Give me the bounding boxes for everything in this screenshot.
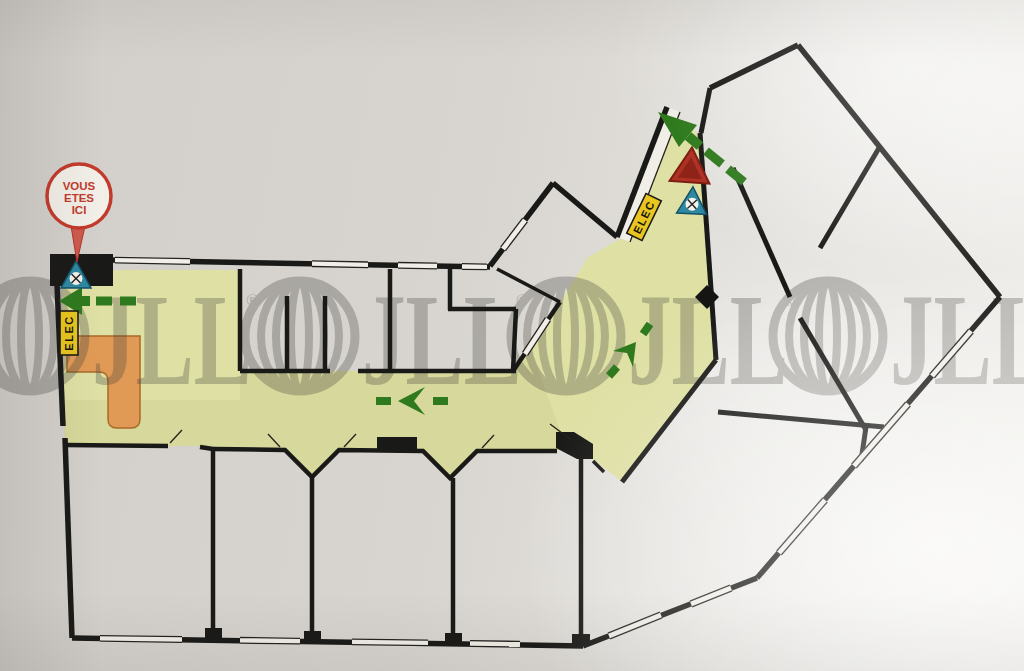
jll-watermark-text: JLL [362, 266, 522, 413]
marker-line2: ETES [64, 192, 94, 204]
jll-watermark-text: JLL [92, 266, 252, 413]
marker-line3: ICI [72, 204, 87, 216]
elec-cabinet-label: ELEC [60, 311, 78, 355]
elec-label-text: ELEC [63, 315, 75, 350]
evacuation-plan: JLL ® JLL ® JLL ® JLL [0, 0, 1024, 671]
jll-watermark-text: JLL [890, 266, 1024, 413]
marker-line1: VOUS [63, 180, 96, 192]
jll-globe-icon [773, 281, 883, 391]
floorplan-photo: JLL ® JLL ® JLL ® JLL [0, 0, 1024, 671]
jll-watermark-row: JLL ® JLL ® JLL ® JLL [0, 266, 1024, 413]
you-are-here-marker: VOUS ETES ICI [47, 164, 111, 262]
